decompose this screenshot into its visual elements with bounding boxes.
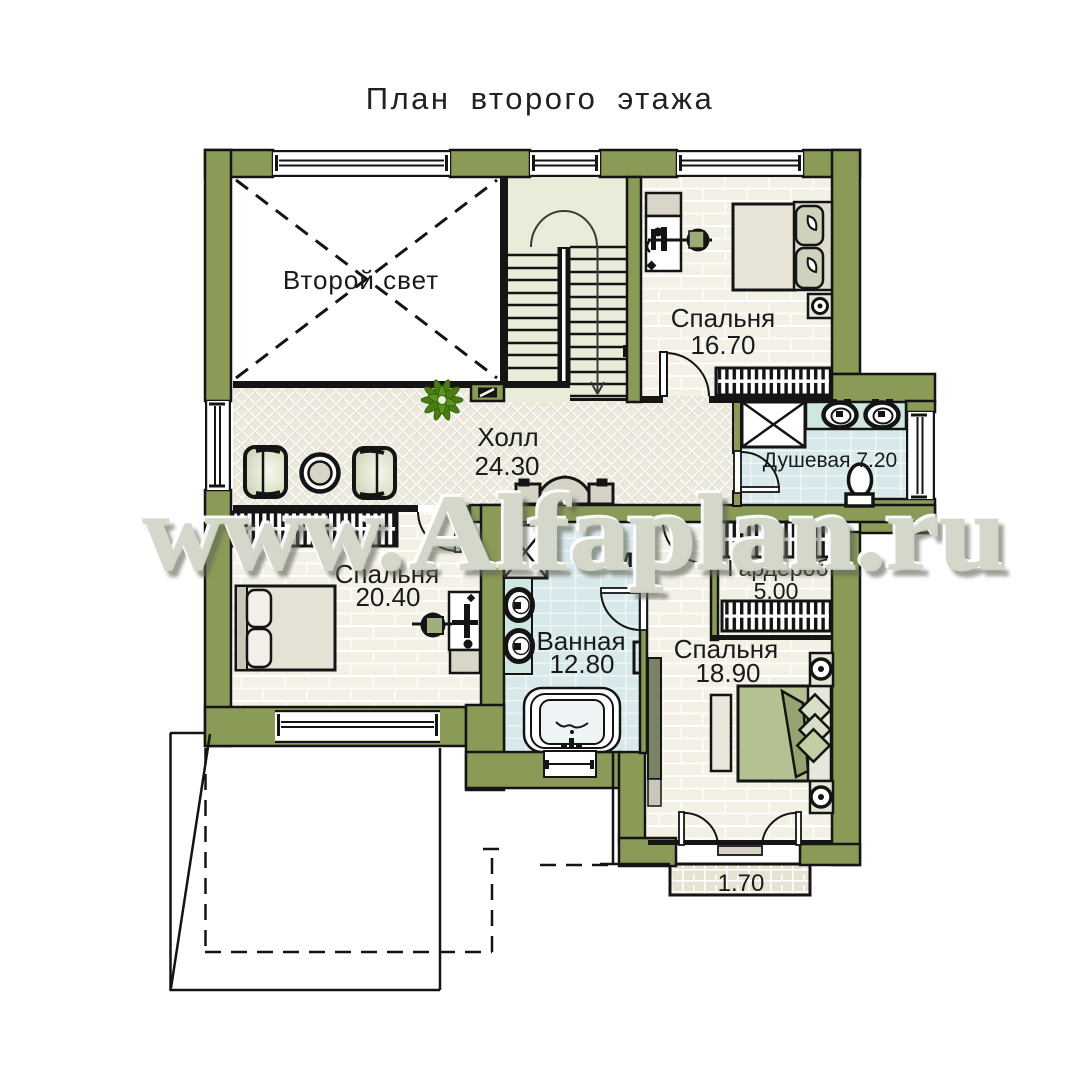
svg-text:18.90: 18.90	[695, 658, 760, 688]
svg-text:1.70: 1.70	[718, 870, 765, 897]
svg-text:Спальня: Спальня	[671, 303, 775, 333]
svg-text:www.: www.	[143, 474, 405, 593]
svg-text:План второго этажа: План второго этажа	[366, 81, 714, 116]
svg-text:12.80: 12.80	[549, 649, 614, 679]
svg-text:Второй свет: Второй свет	[283, 265, 439, 295]
svg-text:Alfaplan.ru: Alfaplan.ru	[410, 474, 1006, 593]
svg-text:Холл: Холл	[477, 422, 538, 452]
svg-text:Душевая 7.20: Душевая 7.20	[763, 449, 897, 472]
svg-text:16.70: 16.70	[690, 330, 755, 360]
